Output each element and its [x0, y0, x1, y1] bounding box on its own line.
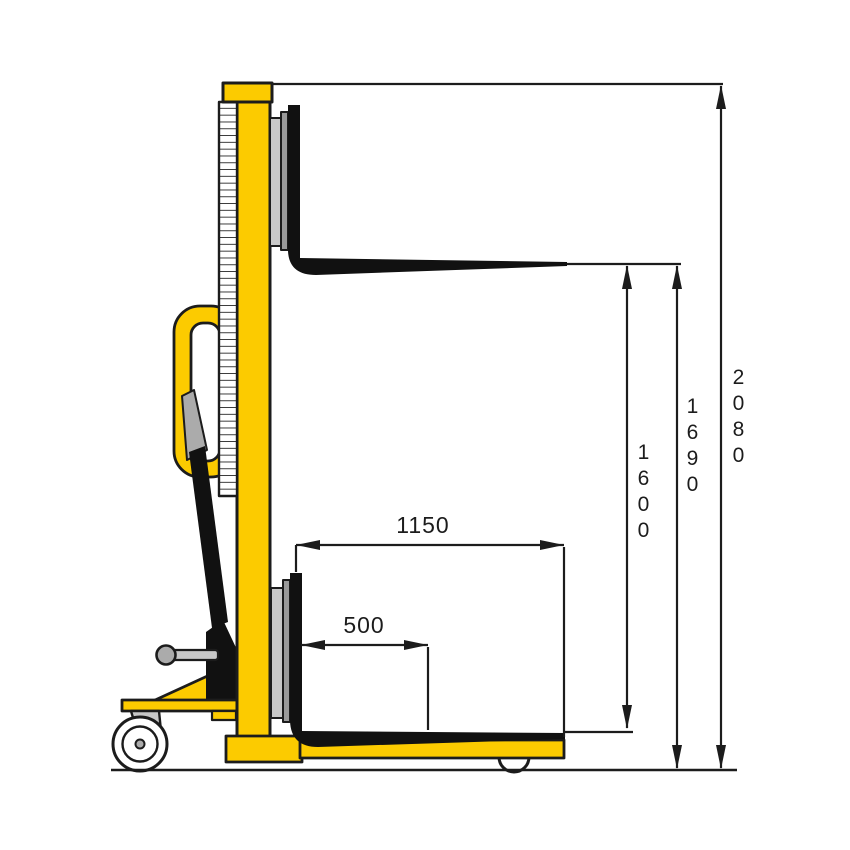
arrow-up-1600: [622, 265, 632, 289]
mast-foot: [226, 736, 302, 762]
mast-cap: [223, 83, 272, 102]
fork-raised: [288, 105, 567, 275]
carriage-backrest-lowered: [283, 580, 290, 722]
arrow-down-1690: [672, 745, 682, 769]
arrow-left-1150: [296, 540, 320, 550]
stacker-dimension-drawing: 1150 500 1600 1690 2080: [0, 0, 850, 850]
dim-label-fork-max-height: 1690: [680, 395, 704, 499]
arrow-up-2080: [716, 85, 726, 109]
release-knob: [157, 646, 176, 665]
arrow-right-1150: [540, 540, 564, 550]
dim-label-lift-height: 1600: [631, 441, 655, 545]
dim-label-load-center: 500: [319, 612, 409, 638]
dim-label-fork-length: 1150: [378, 512, 468, 538]
dimension-arrows: [296, 85, 726, 769]
base-plate: [122, 700, 238, 711]
arrow-up-1690: [672, 265, 682, 289]
base-bracket: [212, 711, 236, 720]
stacker-machine: [113, 83, 567, 772]
stacker-drawing-svg: [0, 0, 850, 850]
fork-carriage-lowered: [271, 573, 565, 747]
carriage-backrest-raised: [281, 112, 288, 250]
arrow-right-500: [404, 640, 428, 650]
carriage-plate-lowered: [271, 588, 283, 718]
caster-wheel: [113, 717, 167, 771]
dim-label-overall-height: 2080: [726, 366, 750, 470]
dimension-lines: [111, 84, 737, 770]
carriage-plate-raised: [270, 118, 281, 246]
arrow-down-2080: [716, 745, 726, 769]
arrow-left-500: [301, 640, 325, 650]
lift-chain-strip: [219, 102, 237, 496]
arrow-down-1600: [622, 705, 632, 729]
mast-column: [237, 100, 270, 745]
fork-carriage-raised: [270, 105, 567, 275]
